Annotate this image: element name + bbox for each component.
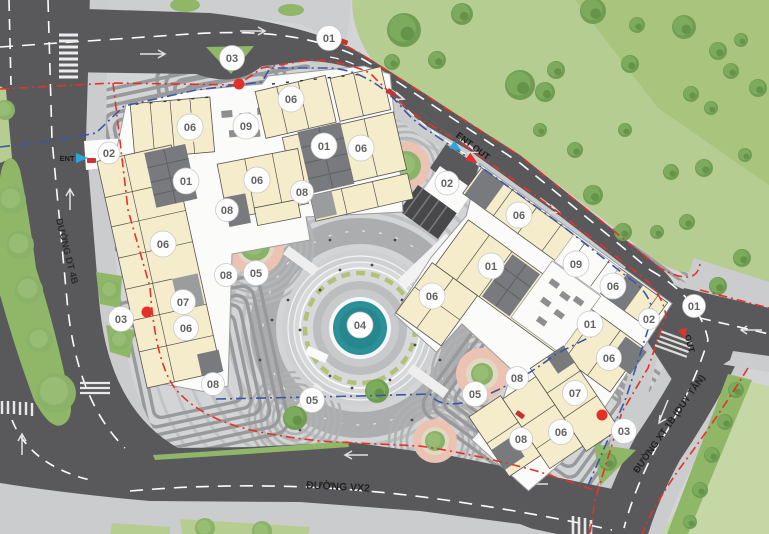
svg-text:01: 01 [485,261,497,273]
svg-text:06: 06 [251,175,263,187]
svg-text:08: 08 [221,205,233,217]
svg-text:01: 01 [688,301,700,313]
svg-text:01: 01 [318,141,330,153]
svg-text:06: 06 [180,323,192,335]
svg-text:05: 05 [250,268,262,280]
svg-text:08: 08 [207,379,219,391]
svg-text:08: 08 [511,373,523,385]
svg-text:06: 06 [355,143,367,155]
svg-text:07: 07 [569,388,581,400]
svg-text:05: 05 [306,395,318,407]
svg-text:08: 08 [220,270,232,282]
svg-text:06: 06 [184,122,196,134]
svg-text:03: 03 [115,314,127,326]
svg-text:06: 06 [513,210,525,222]
svg-text:02: 02 [643,314,655,326]
svg-text:03: 03 [226,53,238,65]
svg-text:03: 03 [618,426,630,438]
svg-text:06: 06 [607,281,619,293]
svg-text:07: 07 [177,297,189,309]
svg-text:02: 02 [103,148,115,160]
svg-text:09: 09 [240,121,252,133]
svg-text:ENT: ENT [60,154,75,163]
svg-text:06: 06 [603,353,615,365]
svg-text:09: 09 [570,259,582,271]
svg-text:01: 01 [180,176,192,188]
svg-text:04: 04 [354,320,367,332]
svg-text:06: 06 [555,427,567,439]
svg-text:08: 08 [296,187,308,199]
svg-text:01: 01 [323,33,335,45]
svg-text:06: 06 [157,239,169,251]
svg-text:06: 06 [426,291,438,303]
svg-text:05: 05 [469,389,481,401]
svg-text:06: 06 [285,94,297,106]
svg-text:02: 02 [441,178,453,190]
svg-text:01: 01 [584,319,596,331]
svg-text:08: 08 [515,434,527,446]
